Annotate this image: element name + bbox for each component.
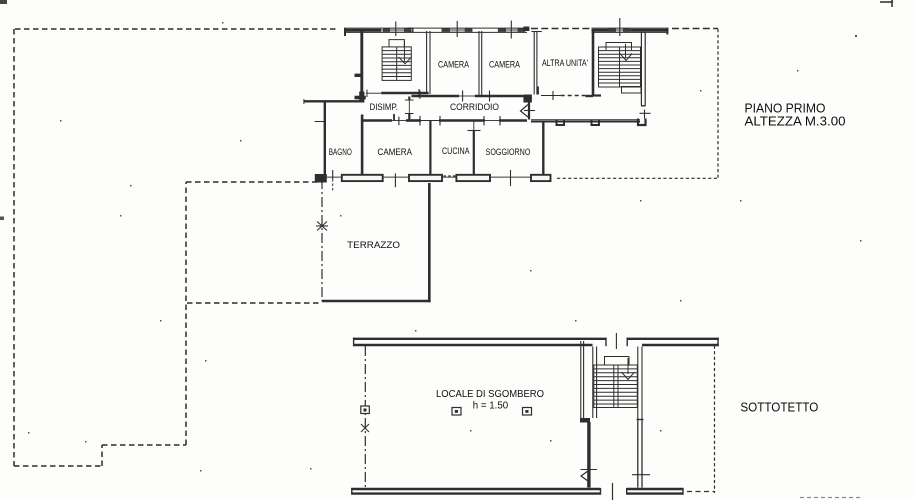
svg-text:CAMERA: CAMERA	[489, 60, 520, 71]
svg-text:BAGNO: BAGNO	[329, 147, 352, 158]
svg-text:TERRAZZO: TERRAZZO	[347, 240, 400, 250]
svg-text:LOCALE DI SGOMBERO: LOCALE DI SGOMBERO	[436, 388, 544, 400]
svg-text:PIANO PRIMO: PIANO PRIMO	[745, 102, 826, 116]
svg-text:CAMERA: CAMERA	[378, 147, 413, 158]
svg-text:h = 1.50: h = 1.50	[473, 401, 509, 412]
svg-text:CUCINA: CUCINA	[442, 146, 470, 157]
svg-text:DISIMP.: DISIMP.	[370, 102, 399, 113]
svg-text:ALTRA UNITA': ALTRA UNITA'	[542, 58, 588, 69]
svg-text:CORRIDOIO: CORRIDOIO	[450, 102, 499, 113]
svg-text:ALTEZZA M.3.00: ALTEZZA M.3.00	[745, 115, 846, 129]
svg-text:CAMERA: CAMERA	[438, 60, 469, 71]
svg-text:SOTTOTETTO: SOTTOTETTO	[740, 401, 818, 415]
svg-text:SOGGIORNO: SOGGIORNO	[486, 147, 531, 158]
